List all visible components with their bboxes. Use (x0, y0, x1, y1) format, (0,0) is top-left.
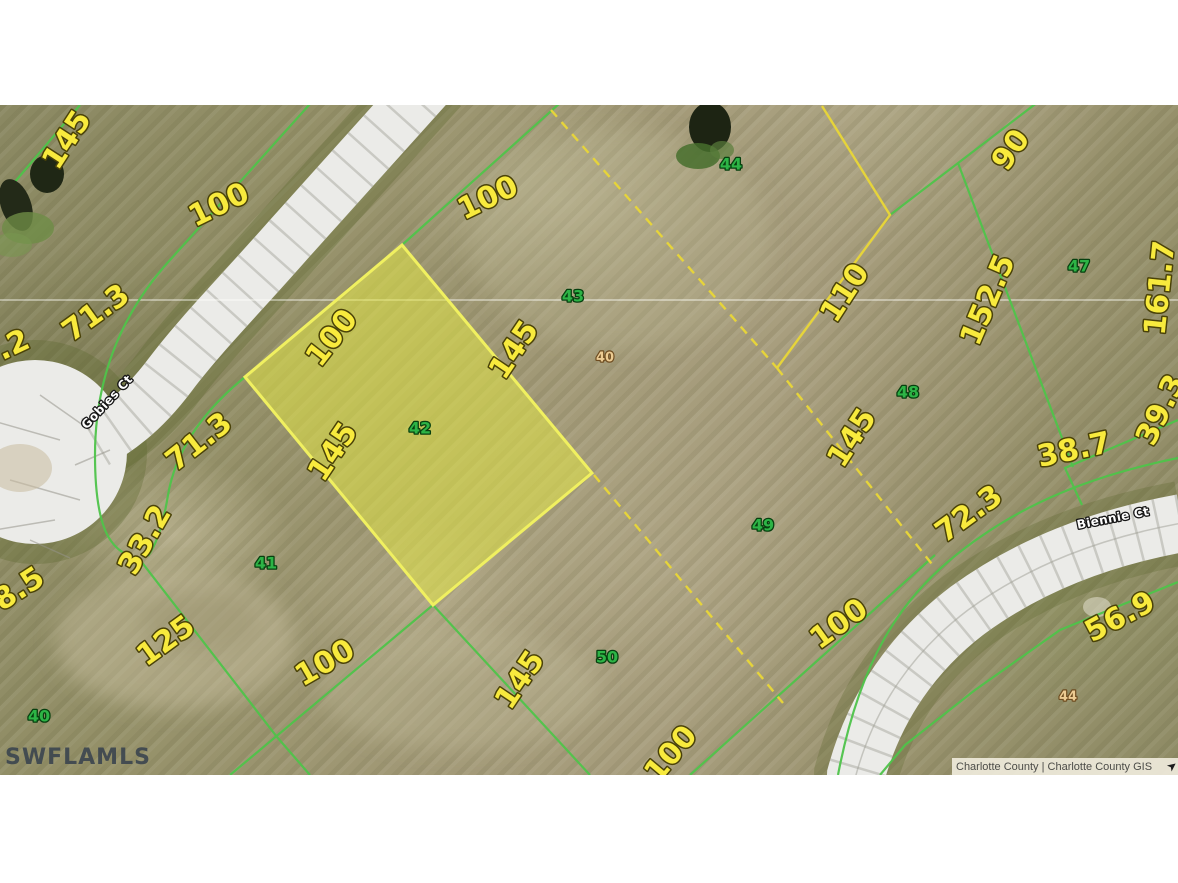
dimension-label: 110 (813, 257, 876, 329)
lot-number: 42 (409, 419, 431, 438)
lot-number: 44 (720, 155, 742, 174)
attribution-bar: Charlotte County | Charlotte County GIS … (952, 758, 1178, 775)
lot-number: 41 (255, 554, 277, 573)
parcel-overlay: 145100.271.310010014514571.333.28.512510… (0, 0, 1178, 883)
dimension-label: 90 (985, 123, 1038, 177)
lot-number: 47 (1068, 257, 1090, 276)
dimension-label: 39.3 (1129, 369, 1178, 451)
gis-logo-icon: ➤ (1164, 758, 1178, 775)
attribution-text: Charlotte County | Charlotte County GIS (952, 761, 1152, 773)
dimension-label: 100 (637, 719, 704, 789)
dimension-label: 38.7 (1034, 425, 1114, 475)
watermark: SWFLAMLS (5, 745, 151, 770)
dimension-label: 161.7 (1138, 239, 1178, 337)
dimension-label: 72.3 (929, 478, 1009, 550)
lot-number: 43 (562, 287, 584, 306)
dimension-label: 8.5 (0, 560, 51, 618)
dimension-label: 145 (820, 402, 883, 474)
dimension-label: 56.9 (1079, 584, 1161, 650)
dimension-label: 71.3 (56, 277, 136, 349)
lot-number-alt: 40 (596, 351, 614, 366)
dimension-label: 100 (183, 176, 255, 235)
lot-number: 49 (752, 516, 774, 535)
lot-number: 40 (28, 707, 50, 726)
biennie-ct-road (850, 523, 1178, 883)
dimension-label: 100 (803, 591, 874, 656)
lot-number-alt: 44 (1059, 690, 1077, 705)
lot-number: 50 (596, 648, 618, 667)
lot-number: 48 (897, 383, 919, 402)
gis-parcel-map-screenshot: 145100.271.310010014514571.333.28.512510… (0, 0, 1178, 883)
lot-numbers-tan: 4044 (596, 351, 1077, 705)
